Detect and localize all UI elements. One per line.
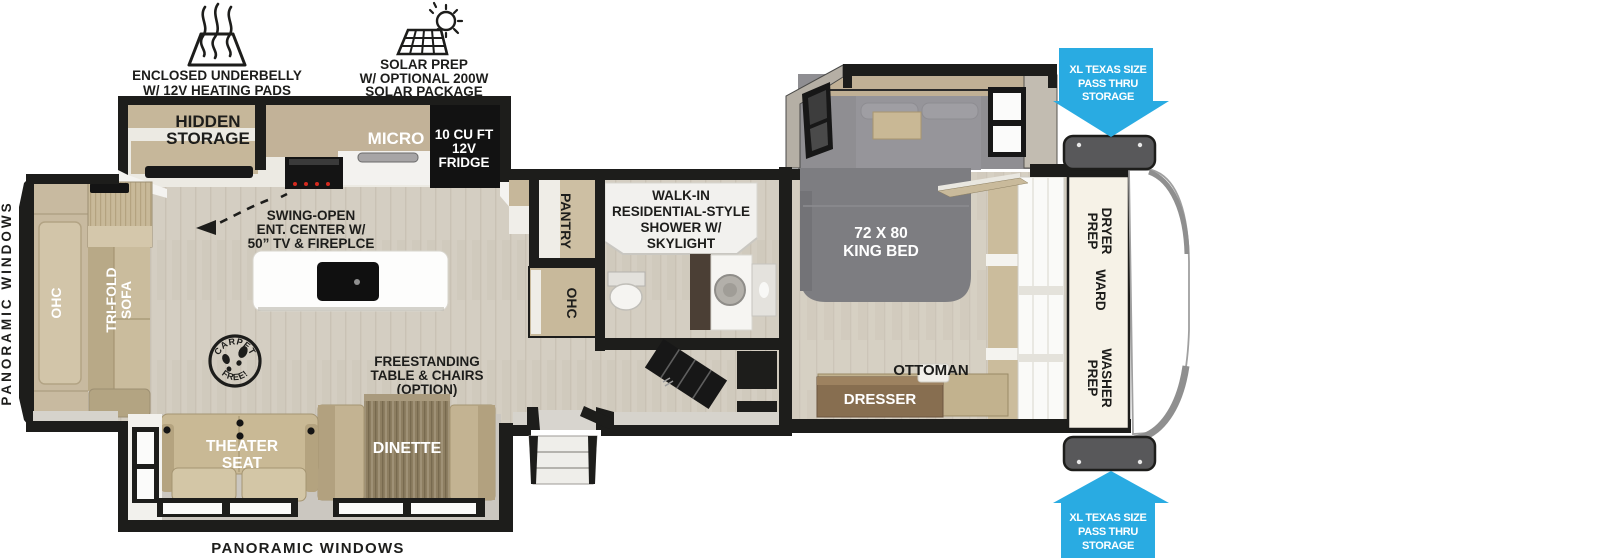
- svg-text:WALK-IN: WALK-IN: [652, 188, 710, 203]
- svg-text:ENT. CENTER W/: ENT. CENTER W/: [257, 222, 366, 237]
- svg-text:SWING-OPEN: SWING-OPEN: [267, 208, 356, 223]
- svg-text:10 CU FT: 10 CU FT: [435, 127, 494, 142]
- svg-text:WARD: WARD: [1093, 269, 1108, 310]
- svg-text:STORAGE: STORAGE: [166, 129, 250, 148]
- svg-text:FREESTANDING: FREESTANDING: [374, 354, 480, 369]
- svg-text:DINETTE: DINETTE: [373, 440, 442, 457]
- svg-text:MICRO: MICRO: [368, 129, 425, 148]
- svg-text:OTTOMAN: OTTOMAN: [893, 362, 969, 379]
- svg-text:PASS THRU: PASS THRU: [1078, 526, 1138, 538]
- svg-text:72 X 80: 72 X 80: [854, 225, 907, 242]
- svg-text:DRESSER: DRESSER: [844, 391, 917, 408]
- svg-text:OHC: OHC: [48, 287, 64, 318]
- svg-text:XL TEXAS SIZE: XL TEXAS SIZE: [1069, 64, 1146, 76]
- svg-text:RESIDENTIAL-STYLE: RESIDENTIAL-STYLE: [612, 204, 750, 219]
- svg-text:SHOWER W/: SHOWER W/: [641, 220, 722, 235]
- svg-text:XL TEXAS SIZE: XL TEXAS SIZE: [1069, 512, 1146, 524]
- svg-text:STORAGE: STORAGE: [1082, 91, 1134, 103]
- svg-text:SOLAR PREP: SOLAR PREP: [380, 57, 468, 72]
- svg-text:SEAT: SEAT: [222, 455, 263, 472]
- svg-text:THEATER: THEATER: [206, 438, 278, 455]
- svg-text:TABLE & CHAIRS: TABLE & CHAIRS: [371, 368, 484, 383]
- svg-text:STORAGE: STORAGE: [1082, 540, 1134, 552]
- svg-text:PANTRY: PANTRY: [558, 193, 574, 250]
- svg-text:12V: 12V: [452, 141, 476, 156]
- svg-text:SKYLIGHT: SKYLIGHT: [647, 236, 716, 251]
- svg-text:OHC: OHC: [564, 287, 580, 318]
- svg-text:50” TV & FIREPLCE: 50” TV & FIREPLCE: [248, 236, 375, 251]
- svg-text:PASS THRU: PASS THRU: [1078, 78, 1138, 90]
- svg-text:ENCLOSED UNDERBELLY: ENCLOSED UNDERBELLY: [132, 68, 302, 83]
- svg-text:W/ 12V HEATING PADS: W/ 12V HEATING PADS: [143, 83, 291, 98]
- svg-text:FRIDGE: FRIDGE: [438, 155, 489, 170]
- svg-text:PANORAMIC WINDOWS: PANORAMIC WINDOWS: [0, 200, 14, 405]
- svg-text:DRYERPREP: DRYERPREP: [1085, 208, 1114, 255]
- svg-text:PANORAMIC WINDOWS: PANORAMIC WINDOWS: [211, 540, 404, 557]
- svg-text:KING BED: KING BED: [843, 243, 919, 260]
